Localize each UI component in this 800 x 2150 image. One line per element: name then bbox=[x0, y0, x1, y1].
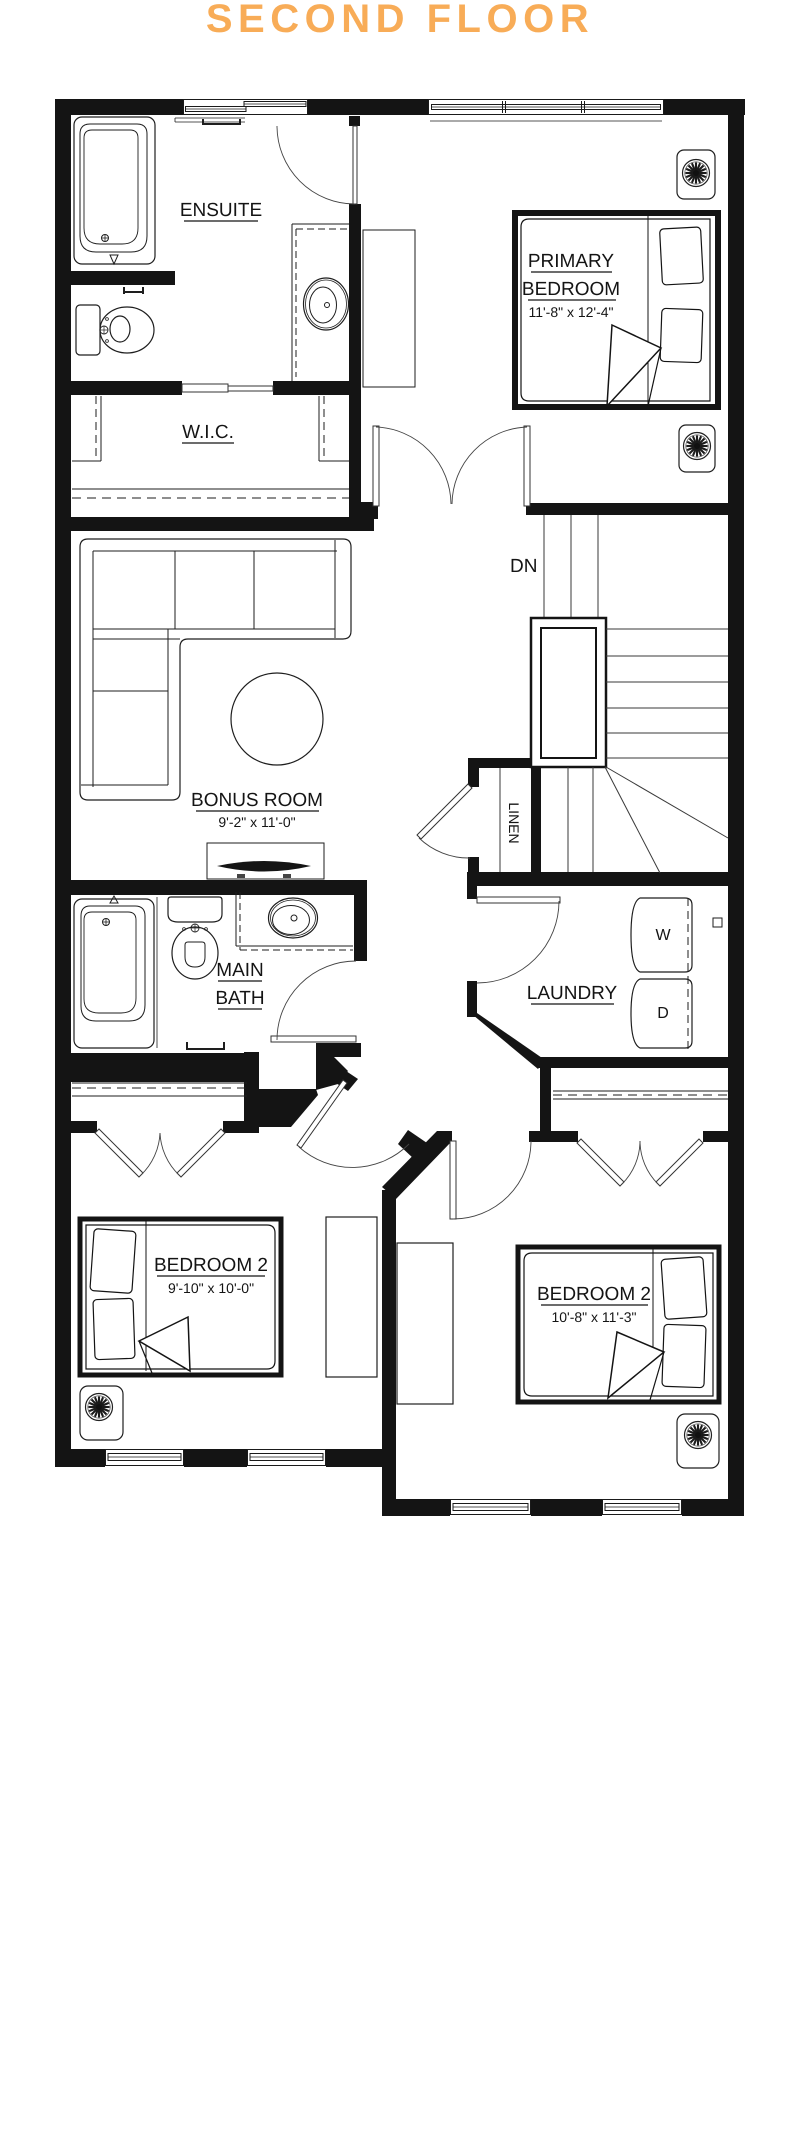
svg-text:9'-2" x 11'-0": 9'-2" x 11'-0" bbox=[218, 814, 295, 830]
svg-text:BEDROOM: BEDROOM bbox=[522, 279, 620, 300]
svg-text:W: W bbox=[655, 927, 671, 944]
svg-text:BEDROOM 2: BEDROOM 2 bbox=[537, 1284, 651, 1305]
svg-text:ENSUITE: ENSUITE bbox=[180, 200, 262, 221]
svg-text:9'-10" x 10'-0": 9'-10" x 10'-0" bbox=[168, 1280, 254, 1296]
svg-text:PRIMARY: PRIMARY bbox=[528, 251, 615, 272]
svg-text:MAIN: MAIN bbox=[216, 960, 264, 981]
svg-text:LAUNDRY: LAUNDRY bbox=[527, 983, 618, 1004]
svg-text:W.I.C.: W.I.C. bbox=[182, 422, 234, 443]
svg-text:BEDROOM 2: BEDROOM 2 bbox=[154, 1255, 268, 1276]
svg-text:10'-8" x 11'-3": 10'-8" x 11'-3" bbox=[551, 1309, 636, 1325]
svg-text:SECOND FLOOR: SECOND FLOOR bbox=[206, 0, 594, 41]
svg-text:11'-8" x 12'-4": 11'-8" x 12'-4" bbox=[528, 304, 613, 320]
svg-text:BATH: BATH bbox=[215, 988, 264, 1009]
svg-text:DN: DN bbox=[510, 556, 537, 577]
svg-text:BONUS ROOM: BONUS ROOM bbox=[191, 790, 323, 811]
svg-text:LINEN: LINEN bbox=[506, 802, 522, 843]
svg-text:D: D bbox=[657, 1005, 669, 1022]
